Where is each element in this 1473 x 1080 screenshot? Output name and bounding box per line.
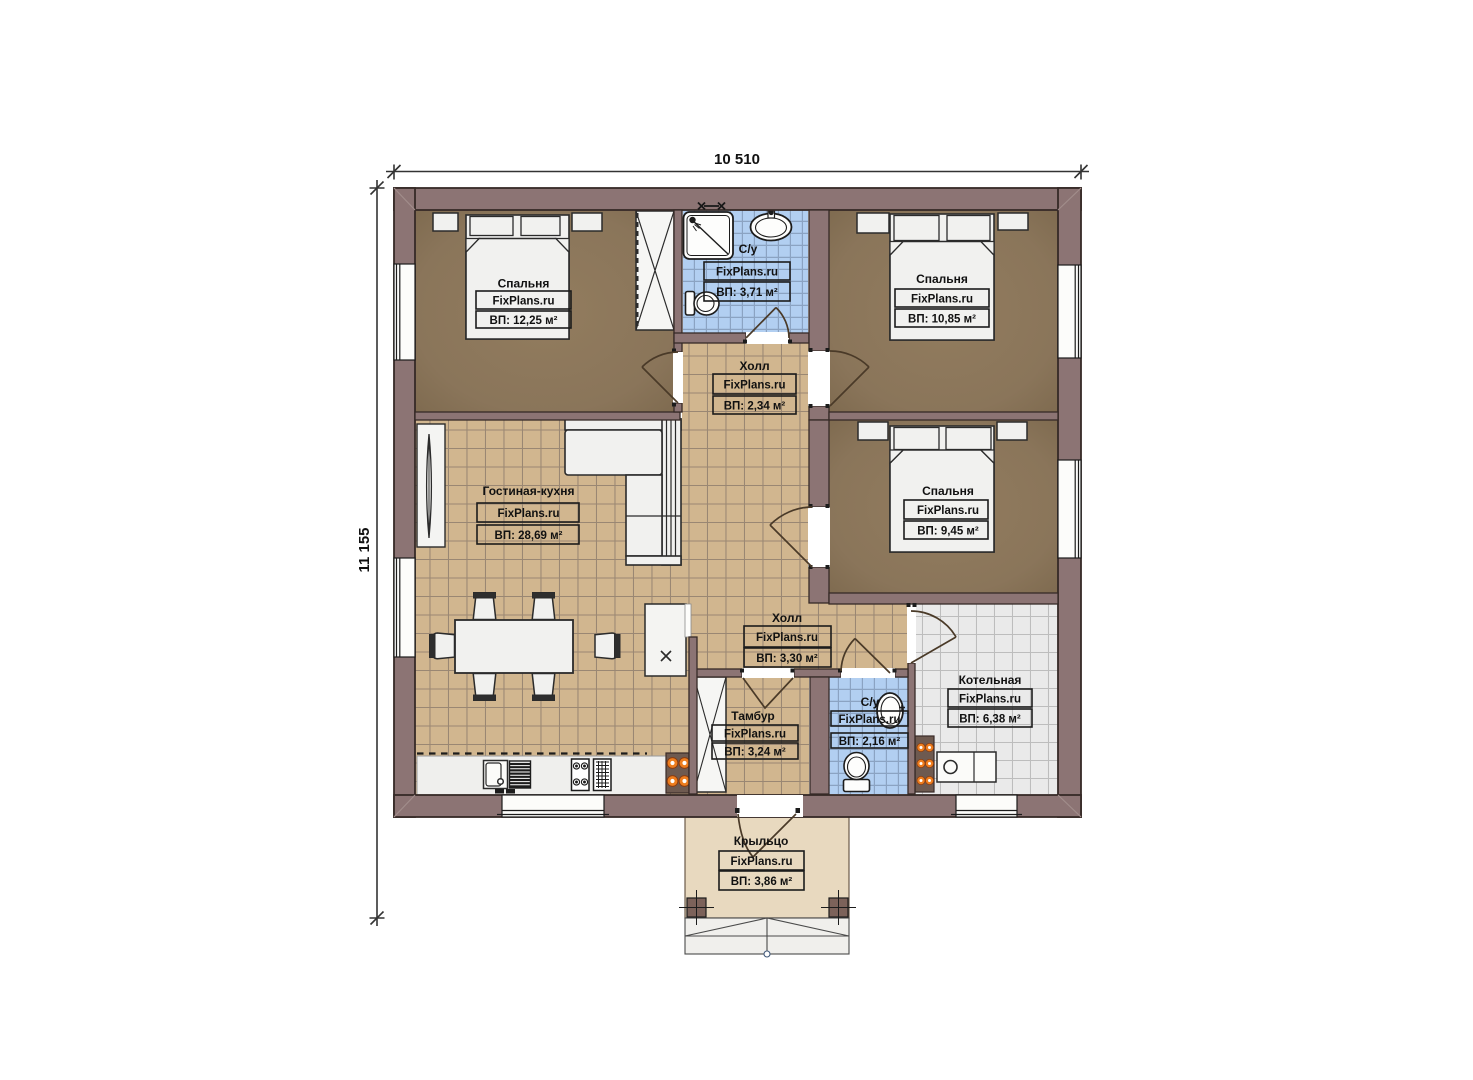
svg-text:ВП: 12,25 м²: ВП: 12,25 м² <box>490 315 558 327</box>
svg-text:Холл: Холл <box>772 611 802 625</box>
svg-text:ВП: 3,24 м²: ВП: 3,24 м² <box>724 747 786 759</box>
svg-text:Спальня: Спальня <box>922 484 974 498</box>
svg-text:ВП: 9,45 м²: ВП: 9,45 м² <box>917 526 979 538</box>
svg-text:ВП: 2,16 м²: ВП: 2,16 м² <box>839 736 901 748</box>
svg-text:ВП: 3,86 м²: ВП: 3,86 м² <box>731 876 793 888</box>
svg-text:Спальня: Спальня <box>498 277 550 291</box>
svg-text:FixPlans.ru: FixPlans.ru <box>959 694 1021 706</box>
svg-text:FixPlans.ru: FixPlans.ru <box>839 714 901 726</box>
svg-text:ВП: 3,30 м²: ВП: 3,30 м² <box>756 653 818 665</box>
svg-text:FixPlans.ru: FixPlans.ru <box>724 380 786 392</box>
svg-text:Холл: Холл <box>739 359 769 373</box>
svg-text:10 510: 10 510 <box>714 151 760 168</box>
svg-text:ВП: 2,34 м²: ВП: 2,34 м² <box>724 401 786 413</box>
svg-text:FixPlans.ru: FixPlans.ru <box>731 856 793 868</box>
svg-text:FixPlans.ru: FixPlans.ru <box>911 294 973 306</box>
svg-text:ВП: 10,85 м²: ВП: 10,85 м² <box>908 314 976 326</box>
svg-text:Котельная: Котельная <box>959 673 1022 687</box>
svg-text:Крыльцо: Крыльцо <box>734 834 789 848</box>
svg-text:11 155: 11 155 <box>356 527 373 572</box>
svg-text:ВП: 28,69 м²: ВП: 28,69 м² <box>495 530 563 542</box>
svg-text:С/у: С/у <box>739 242 758 256</box>
svg-text:С/у: С/у <box>861 695 880 709</box>
svg-text:FixPlans.ru: FixPlans.ru <box>716 267 778 279</box>
svg-text:FixPlans.ru: FixPlans.ru <box>917 505 979 517</box>
svg-text:ВП: 3,71 м²: ВП: 3,71 м² <box>716 287 778 299</box>
svg-text:FixPlans.ru: FixPlans.ru <box>493 296 555 308</box>
svg-text:Тамбур: Тамбур <box>731 709 775 723</box>
svg-text:Спальня: Спальня <box>916 272 968 286</box>
svg-text:ВП: 6,38 м²: ВП: 6,38 м² <box>959 714 1021 726</box>
svg-text:FixPlans.ru: FixPlans.ru <box>724 729 786 741</box>
svg-text:FixPlans.ru: FixPlans.ru <box>756 632 818 644</box>
svg-text:FixPlans.ru: FixPlans.ru <box>498 508 560 520</box>
svg-text:Гостиная-кухня: Гостиная-кухня <box>483 484 575 498</box>
